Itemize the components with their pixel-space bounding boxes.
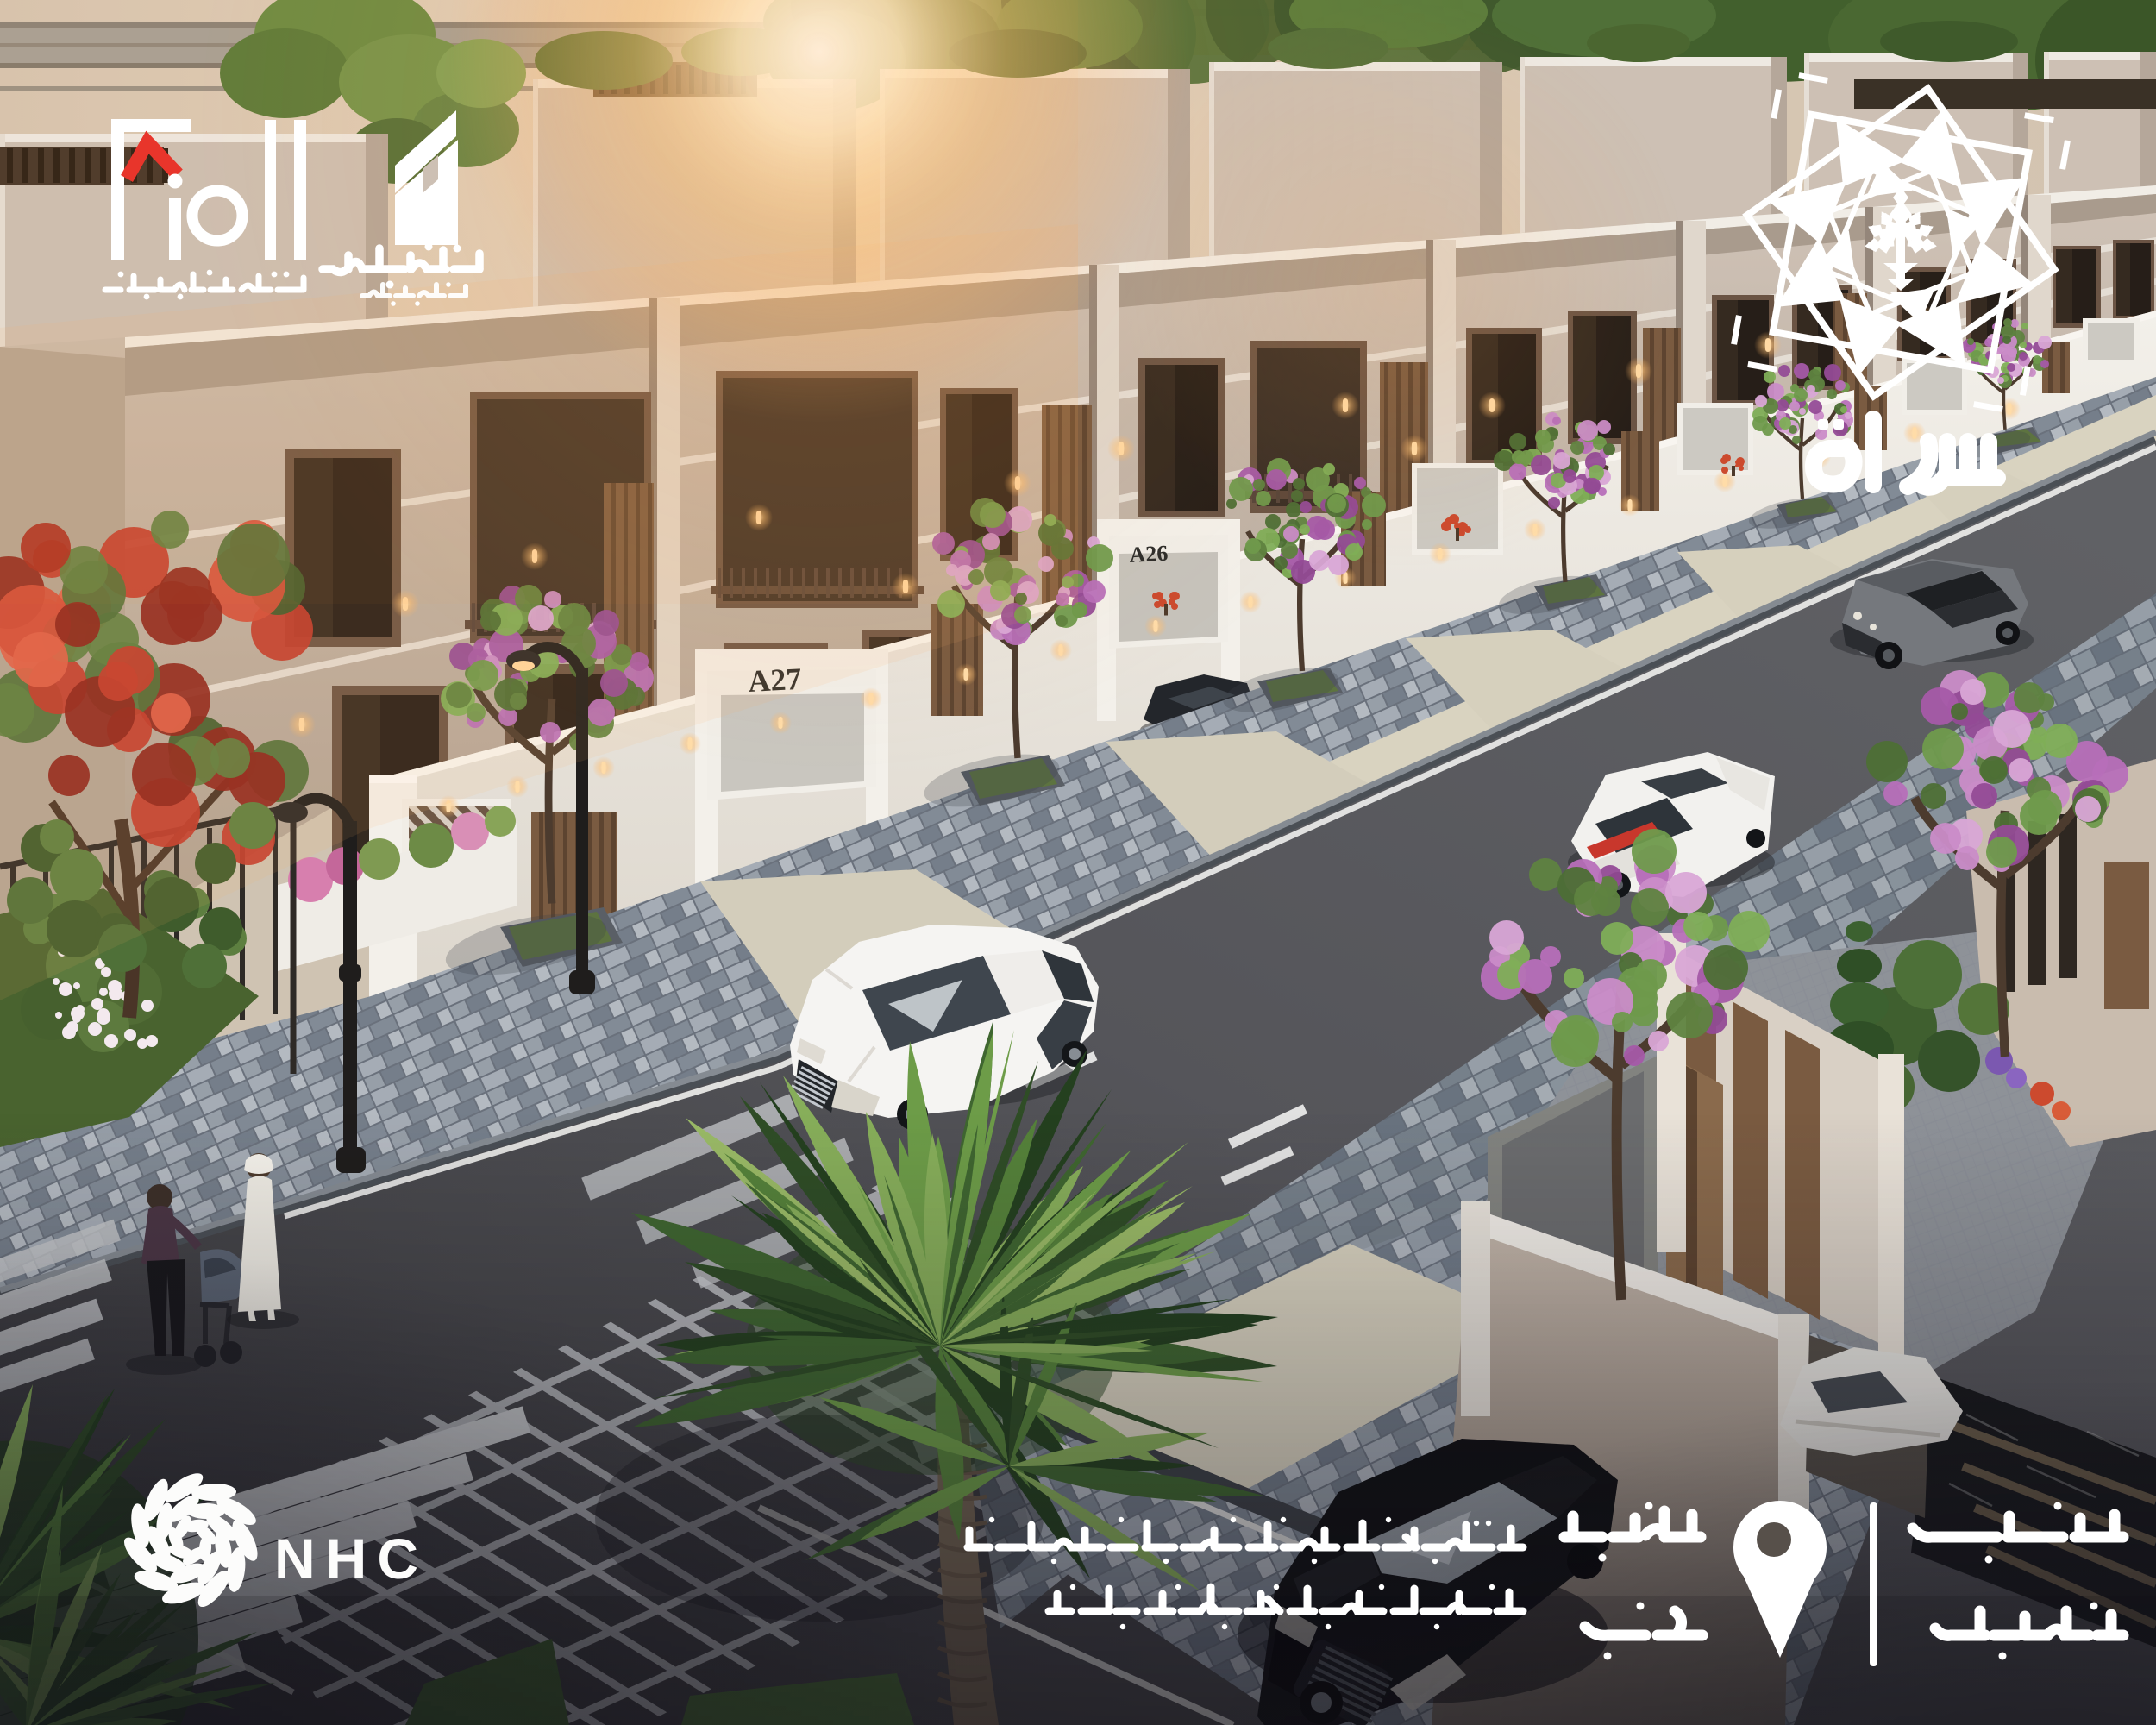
svg-text:NHC: NHC bbox=[274, 1527, 429, 1590]
